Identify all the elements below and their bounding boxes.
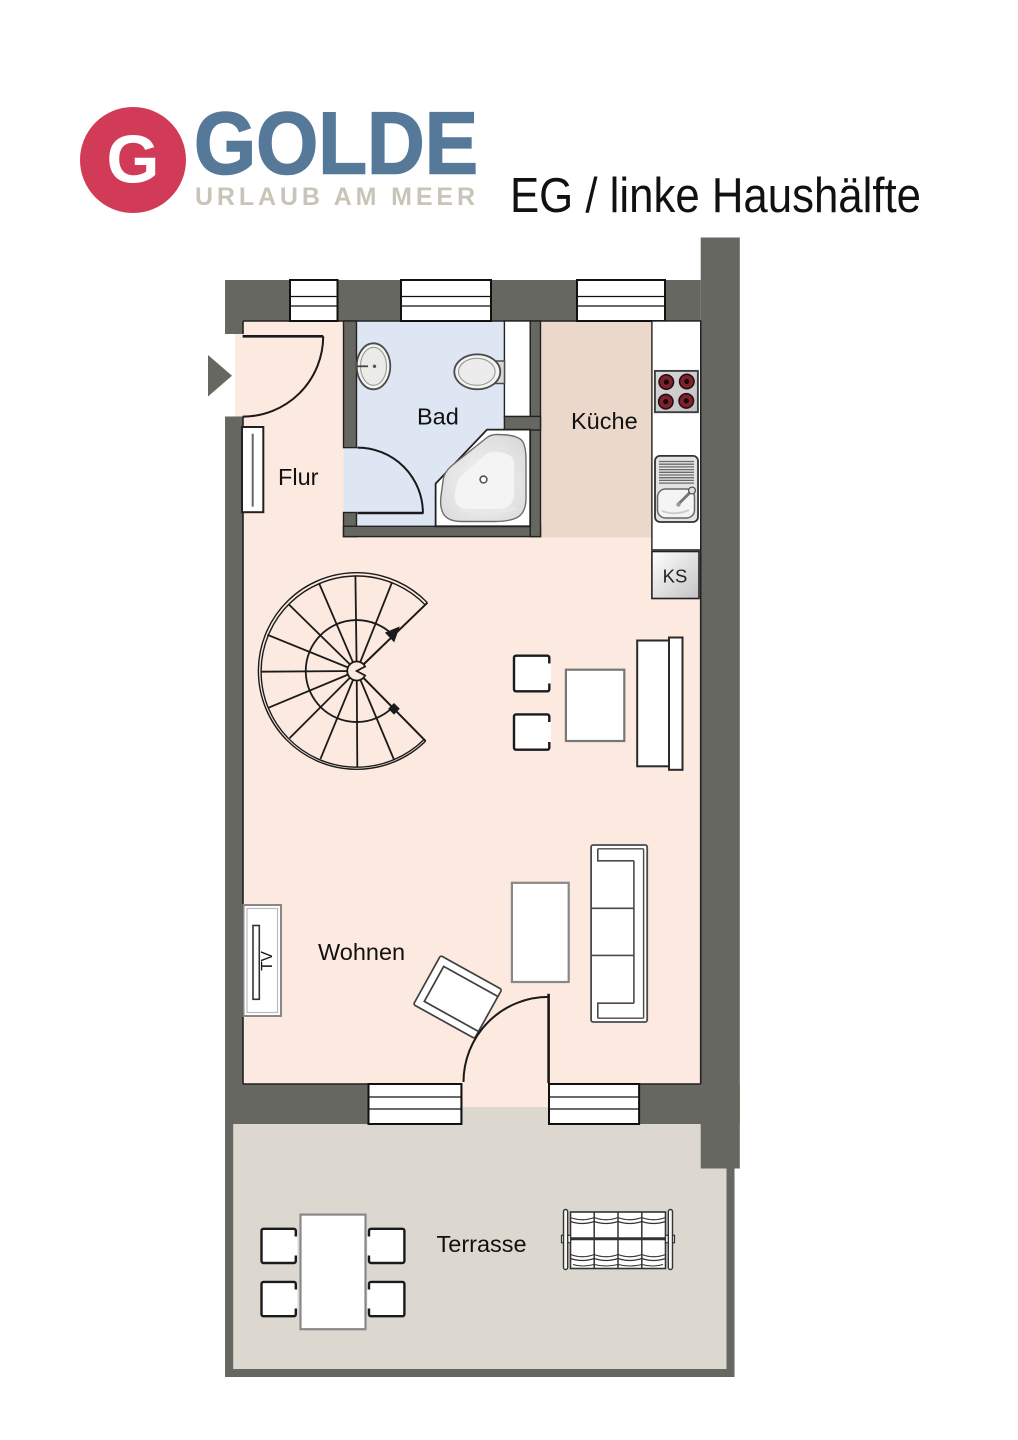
svg-text:Flur: Flur (278, 464, 319, 490)
svg-text:Bad: Bad (417, 404, 459, 430)
svg-text:TV: TV (259, 950, 276, 970)
svg-text:Wohnen: Wohnen (318, 939, 405, 965)
svg-text:EG / linke Haushälfte: EG / linke Haushälfte (510, 169, 921, 223)
svg-text:GOLDE: GOLDE (194, 94, 478, 193)
svg-text:Küche: Küche (571, 408, 638, 434)
svg-text:Terrasse: Terrasse (437, 1231, 527, 1257)
svg-text:KS: KS (663, 566, 688, 587)
svg-text:G: G (107, 122, 160, 198)
